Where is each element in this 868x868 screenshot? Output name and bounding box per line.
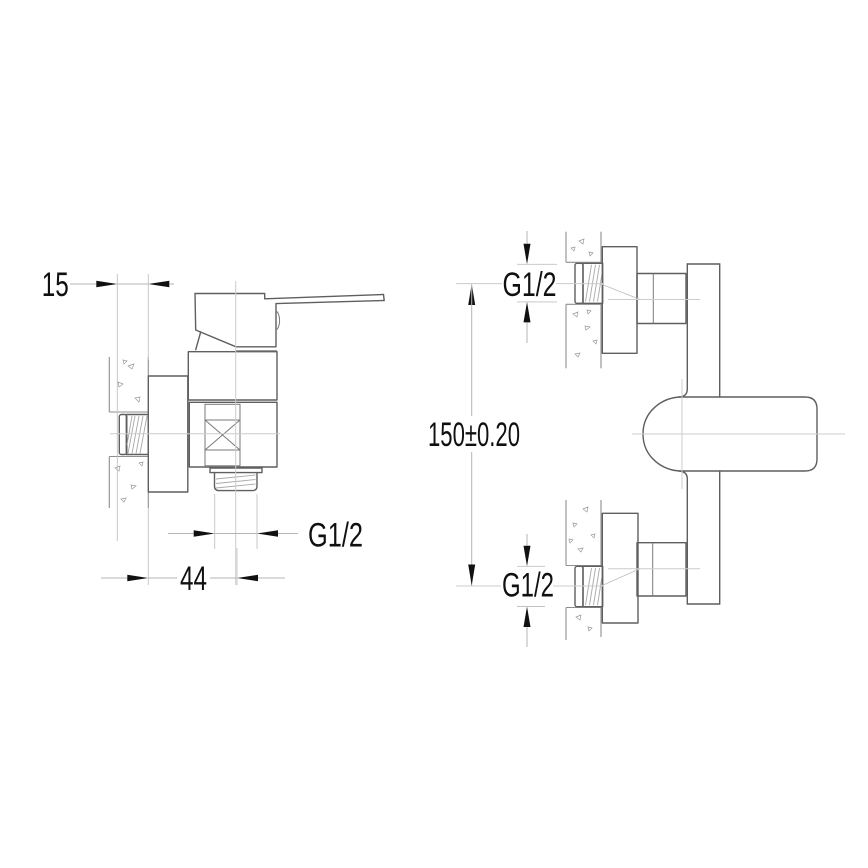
dim-label-outlet-thread: G1/2 <box>308 517 363 555</box>
dim-label-outlet-offset: 44 <box>180 560 207 598</box>
dimension-wall-offset: 15 <box>42 266 174 541</box>
side-view-handle <box>195 294 384 351</box>
front-view-upper-tube <box>637 274 686 324</box>
cartridge <box>205 404 240 466</box>
dim-label-bottom-inlet-thread: G1/2 <box>502 567 554 605</box>
dim-label-top-inlet-thread: G1/2 <box>503 266 557 304</box>
dim-label-inlet-spacing: 150±0.20 <box>428 416 520 454</box>
front-view-lower-escutcheon <box>602 513 638 623</box>
technical-drawing: 15 G1/2 44 G1/2 150 <box>0 0 868 868</box>
dimension-bottom-inlet-thread: G1/2 <box>502 534 554 647</box>
side-view-body <box>188 352 277 467</box>
upper-eccentric-leader <box>601 284 640 300</box>
front-view-lower-wall <box>566 500 602 640</box>
side-view-inlet-nipple <box>119 415 148 455</box>
drawing-sheet: 15 G1/2 44 G1/2 150 <box>0 0 868 868</box>
front-view-lower-tube <box>637 543 686 596</box>
front-view-upper-wall <box>566 232 602 369</box>
dimension-top-inlet-thread: G1/2 <box>503 231 558 343</box>
lower-eccentric-leader <box>601 569 640 586</box>
dim-label-wall-offset: 15 <box>42 266 69 304</box>
dimension-inlet-spacing: 150±0.20 <box>428 284 520 586</box>
dimension-outlet-thread: G1/2 <box>168 494 363 555</box>
